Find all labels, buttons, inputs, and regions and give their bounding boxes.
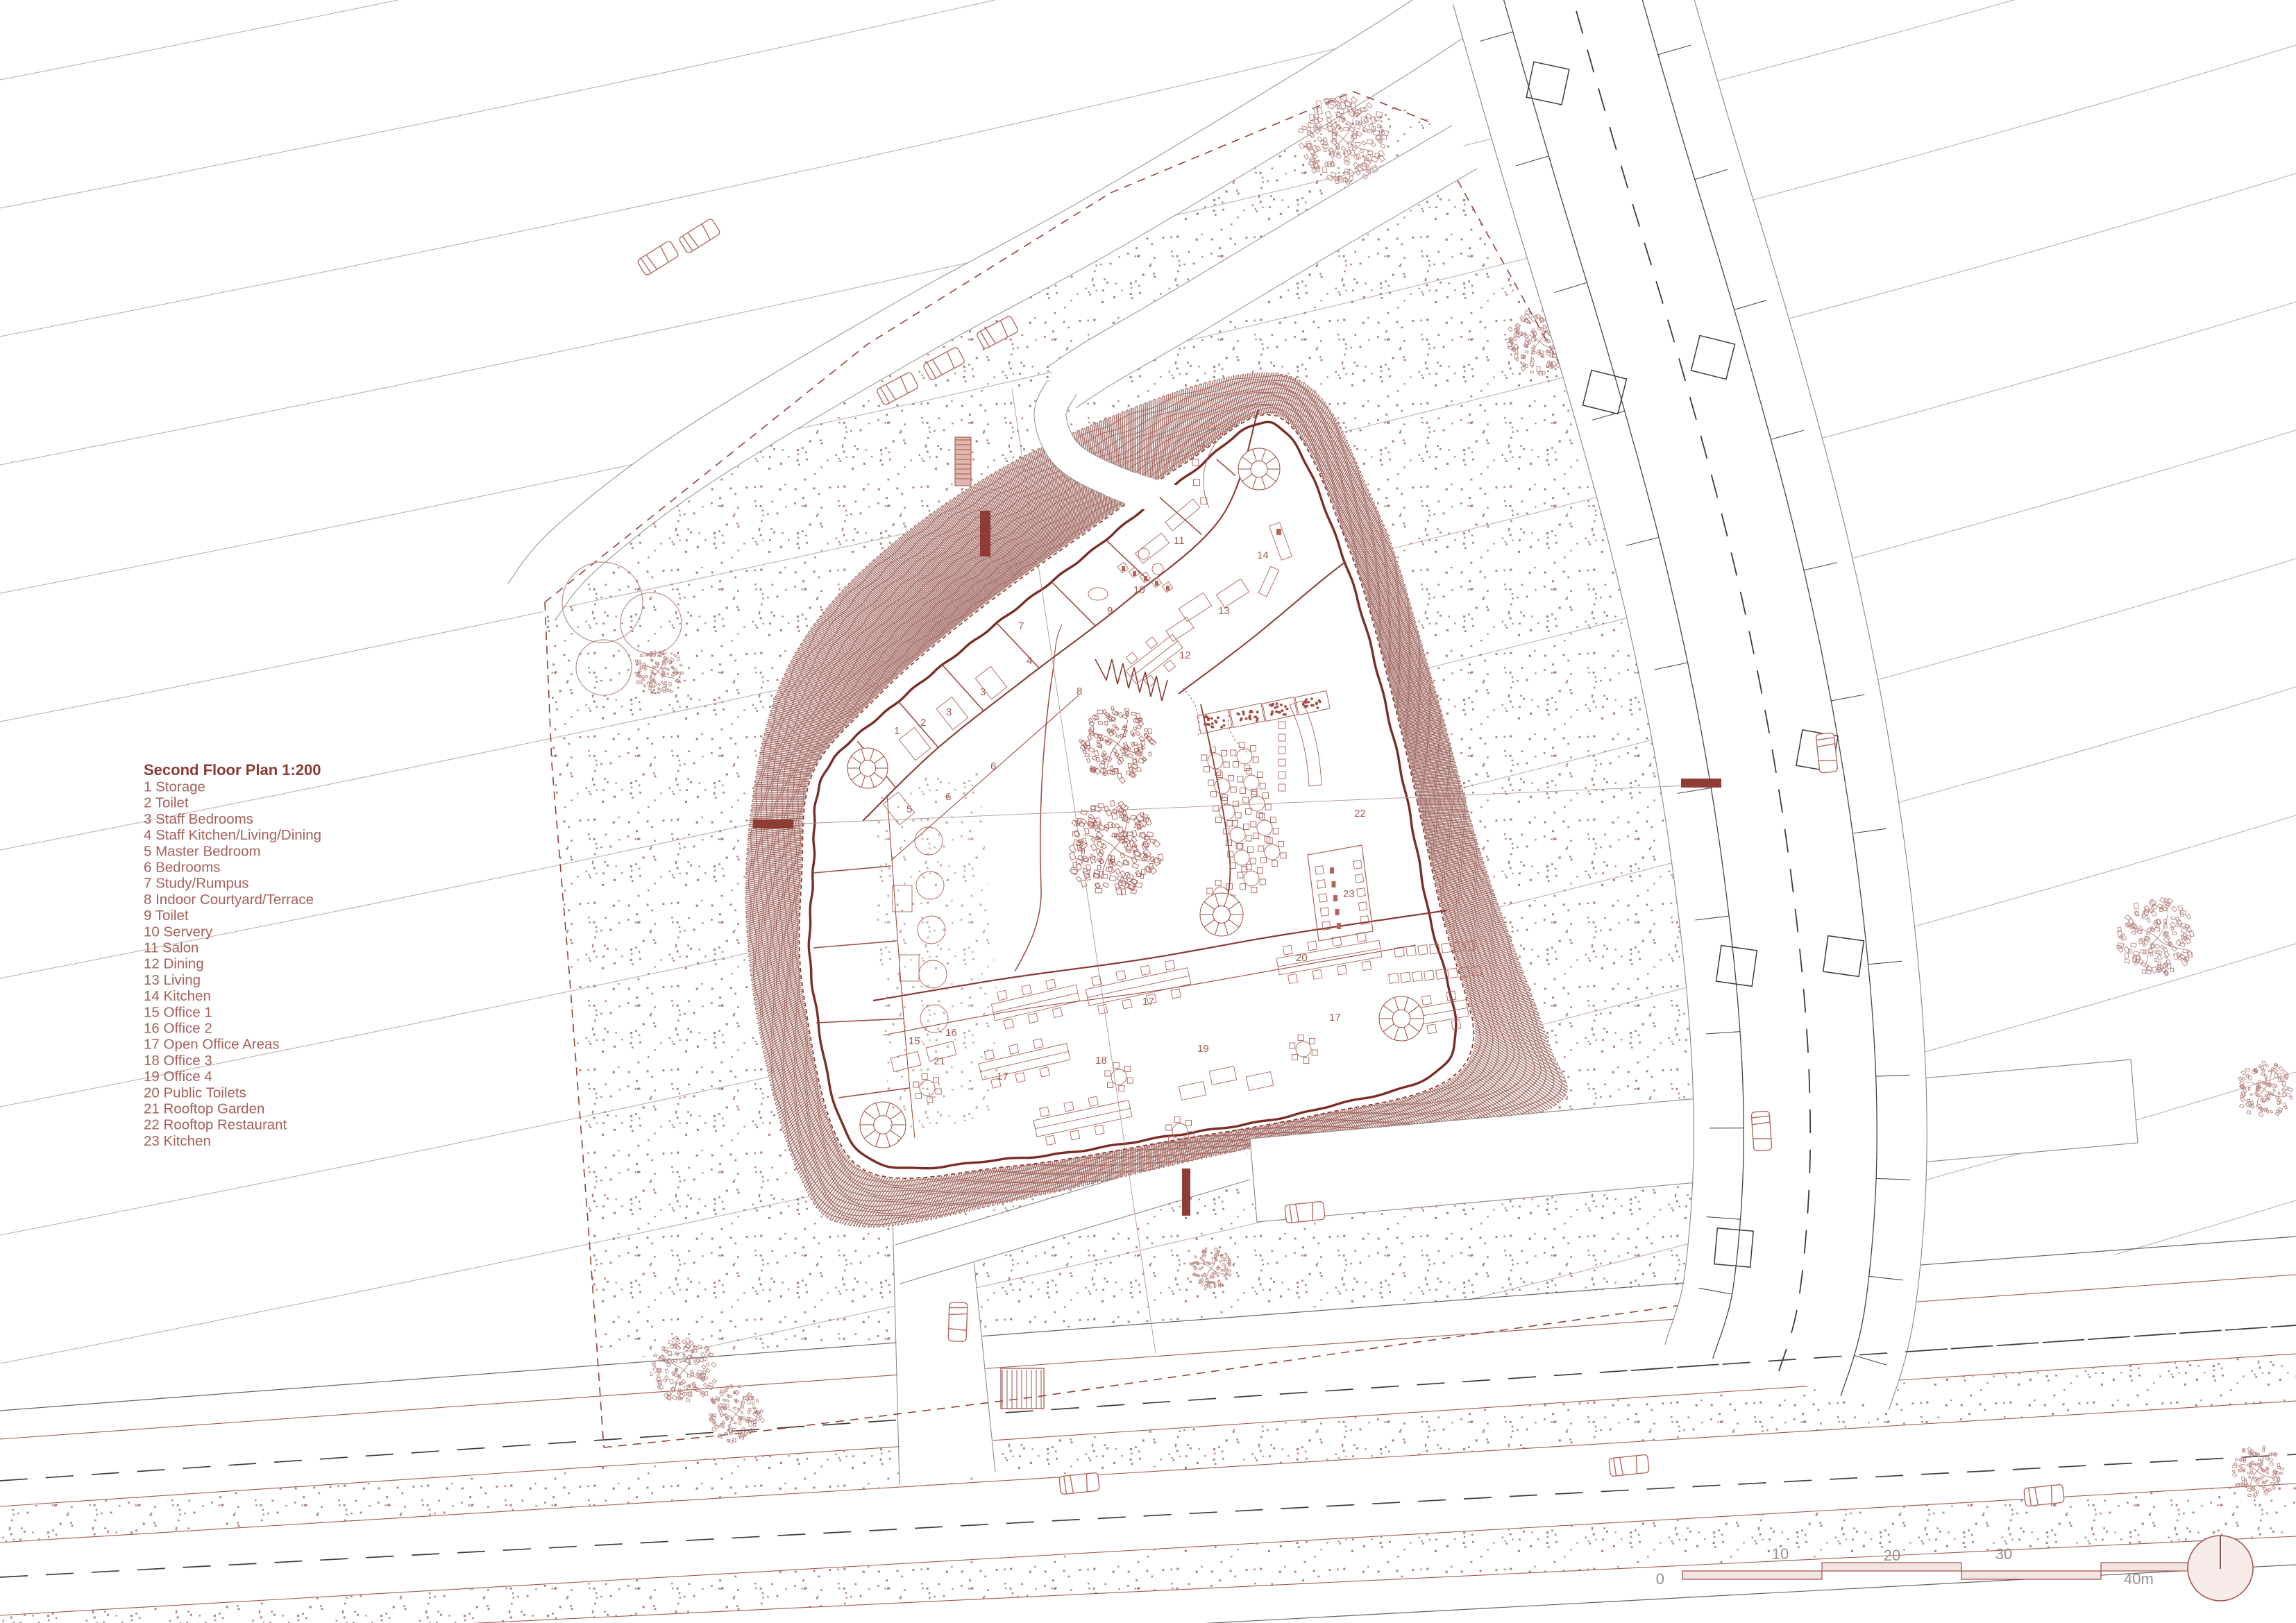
svg-text:30: 30 <box>1995 1545 2012 1563</box>
svg-text:21 Rooftop Garden: 21 Rooftop Garden <box>144 1101 264 1117</box>
svg-text:20: 20 <box>1296 952 1308 964</box>
svg-text:18: 18 <box>1095 1055 1107 1067</box>
svg-text:2 Toilet: 2 Toilet <box>144 795 189 811</box>
svg-text:23: 23 <box>1343 888 1355 900</box>
svg-text:14 Kitchen: 14 Kitchen <box>144 988 211 1004</box>
svg-text:17: 17 <box>1142 996 1154 1008</box>
svg-text:15: 15 <box>909 1035 920 1047</box>
svg-text:3 Staff Bedrooms: 3 Staff Bedrooms <box>144 811 253 827</box>
svg-text:23 Kitchen: 23 Kitchen <box>144 1133 211 1149</box>
svg-text:20: 20 <box>1884 1547 1900 1564</box>
svg-text:40m: 40m <box>2124 1570 2154 1588</box>
svg-text:6: 6 <box>945 791 951 803</box>
svg-text:7: 7 <box>1018 620 1024 632</box>
svg-text:17: 17 <box>1329 1012 1341 1023</box>
svg-text:13 Living: 13 Living <box>144 972 201 988</box>
svg-text:14: 14 <box>1257 550 1269 561</box>
svg-text:19: 19 <box>1197 1043 1209 1055</box>
svg-text:10: 10 <box>1772 1545 1789 1563</box>
svg-text:4: 4 <box>1027 655 1032 667</box>
svg-text:17 Open Office Areas: 17 Open Office Areas <box>144 1037 280 1053</box>
svg-text:3: 3 <box>980 686 986 698</box>
svg-text:1 Storage: 1 Storage <box>144 779 205 795</box>
svg-text:8 Indoor Courtyard/Terrace: 8 Indoor Courtyard/Terrace <box>144 892 314 908</box>
svg-text:22: 22 <box>1354 808 1366 819</box>
svg-text:13: 13 <box>1218 605 1230 617</box>
svg-text:6: 6 <box>990 760 996 772</box>
svg-text:5: 5 <box>906 804 912 815</box>
svg-text:20 Public Toilets: 20 Public Toilets <box>144 1085 246 1101</box>
svg-text:11: 11 <box>1174 535 1185 547</box>
svg-text:21: 21 <box>934 1055 945 1067</box>
svg-text:10: 10 <box>1133 584 1145 596</box>
svg-text:1: 1 <box>894 725 900 737</box>
svg-text:9 Toilet: 9 Toilet <box>144 908 189 924</box>
svg-text:17: 17 <box>997 1071 1008 1082</box>
svg-text:8: 8 <box>1077 686 1082 697</box>
svg-text:Second Floor Plan 1:200: Second Floor Plan 1:200 <box>144 761 321 779</box>
svg-text:12 Dining: 12 Dining <box>144 956 204 972</box>
svg-text:4 Staff Kitchen/Living/Dining: 4 Staff Kitchen/Living/Dining <box>144 827 321 843</box>
svg-text:16: 16 <box>945 1027 957 1039</box>
svg-text:9: 9 <box>1107 605 1113 617</box>
svg-text:2: 2 <box>920 717 926 729</box>
svg-text:7 Study/Rumpus: 7 Study/Rumpus <box>144 876 249 892</box>
svg-text:5 Master Bedroom: 5 Master Bedroom <box>144 843 261 859</box>
svg-text:19 Office 4: 19 Office 4 <box>144 1069 212 1085</box>
svg-text:11 Salon: 11 Salon <box>144 940 199 956</box>
svg-text:0: 0 <box>1656 1570 1664 1588</box>
svg-text:22 Rooftop Restaurant: 22 Rooftop Restaurant <box>144 1117 287 1133</box>
svg-text:10 Servery: 10 Servery <box>144 924 213 940</box>
svg-text:16 Office 2: 16 Office 2 <box>144 1021 212 1037</box>
svg-text:12: 12 <box>1179 649 1191 661</box>
svg-text:18 Office 3: 18 Office 3 <box>144 1053 212 1069</box>
svg-text:3: 3 <box>946 706 952 718</box>
svg-text:15 Office 1: 15 Office 1 <box>144 1004 212 1020</box>
svg-text:6 Bedrooms: 6 Bedrooms <box>144 860 221 876</box>
